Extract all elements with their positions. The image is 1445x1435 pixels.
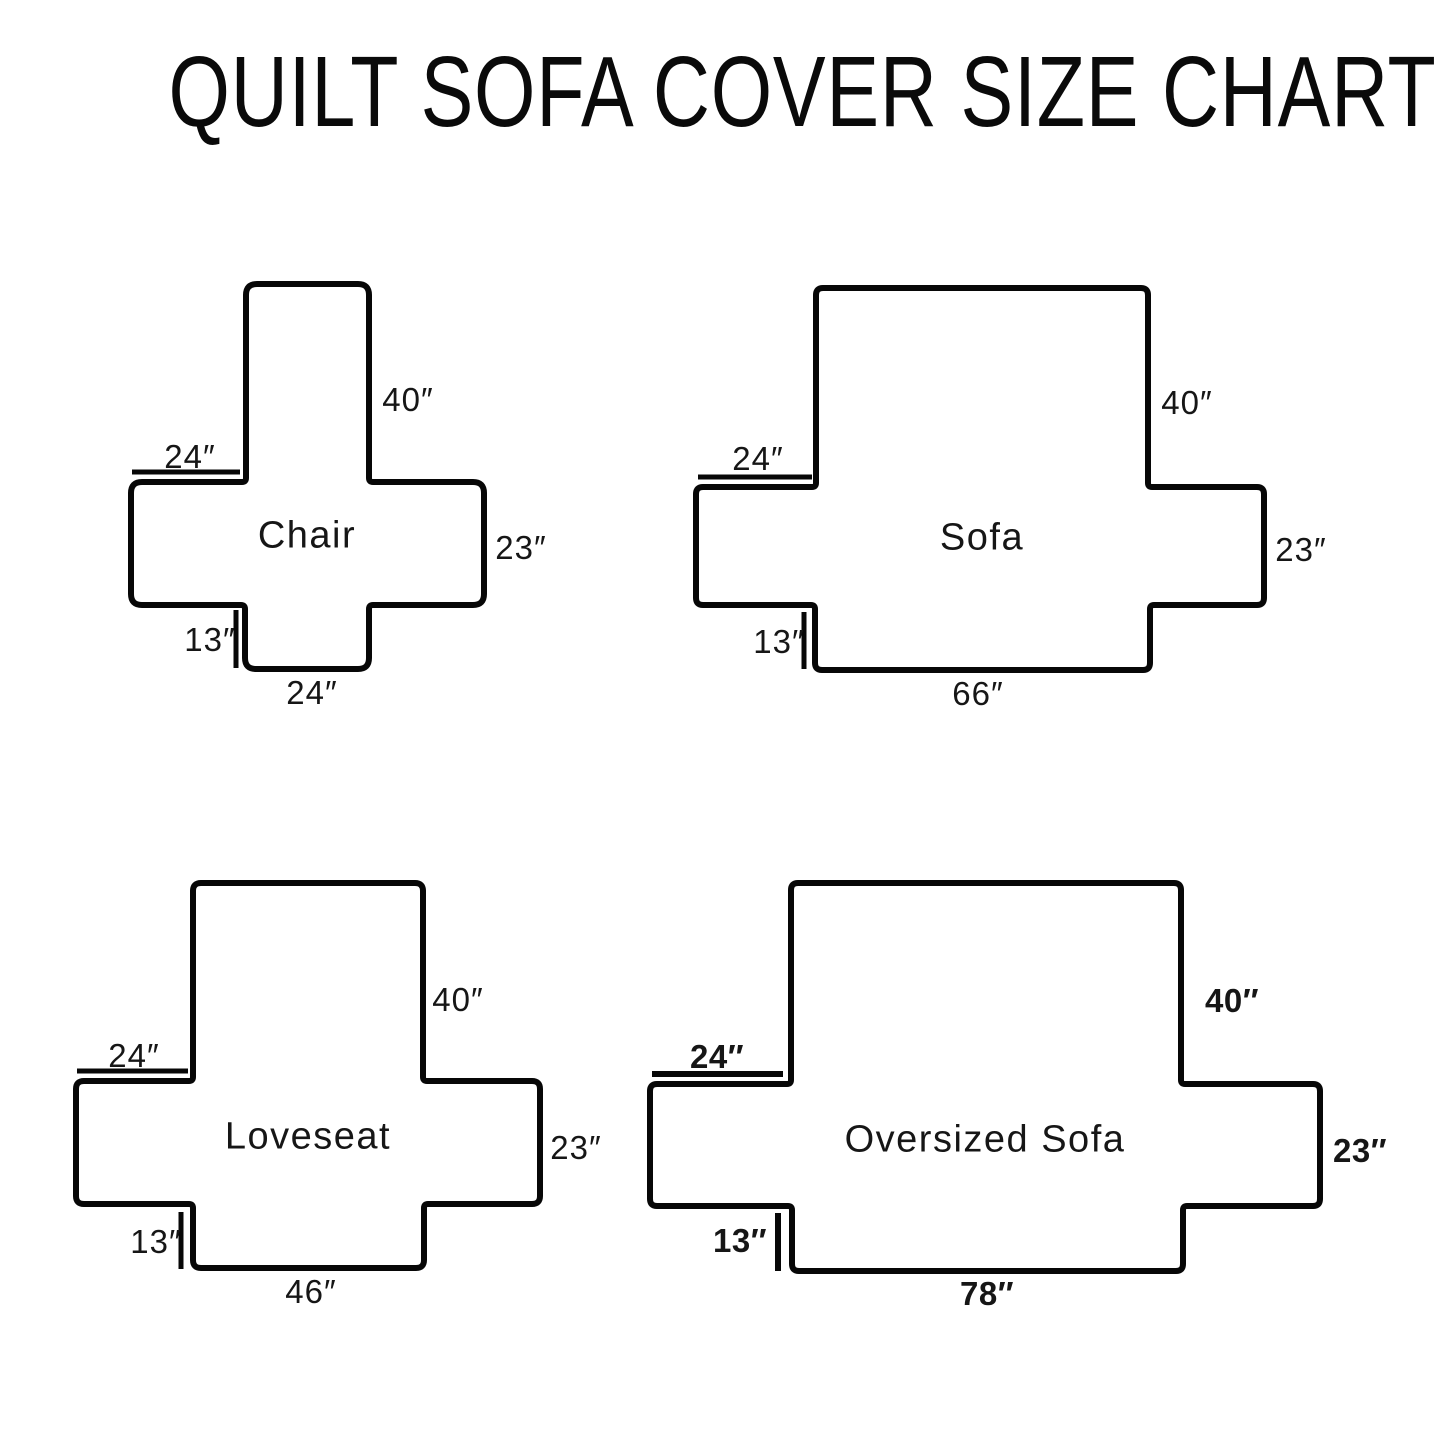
oversized-seat-width-label: 78″ xyxy=(960,1275,1014,1313)
size-chart-page: QUILT SOFA COVER SIZE CHART Chair 40″ 24… xyxy=(0,0,1445,1435)
loveseat-cover-outline xyxy=(76,883,540,1268)
oversized-back-height-label: 40″ xyxy=(1205,982,1259,1020)
loveseat-seat-width-label: 46″ xyxy=(285,1273,336,1311)
loveseat-name-label: Loveseat xyxy=(225,1116,391,1159)
oversized-arm-width-label: 24″ xyxy=(690,1038,744,1076)
sofa-skirt-drop-label: 13″ xyxy=(753,623,804,661)
loveseat-skirt-drop-label: 13″ xyxy=(130,1223,181,1261)
chair-name-label: Chair xyxy=(258,515,356,558)
chair-side-height-label: 23″ xyxy=(495,529,546,567)
chair-arm-width-label: 24″ xyxy=(164,438,215,476)
sofa-seat-width-label: 66″ xyxy=(952,675,1003,713)
chair-seat-width-label: 24″ xyxy=(286,674,337,712)
sofa-back-height-label: 40″ xyxy=(1161,384,1212,422)
loveseat-side-height-label: 23″ xyxy=(550,1129,601,1167)
chair-cover-outline xyxy=(131,284,484,669)
chair-back-height-label: 40″ xyxy=(382,381,433,419)
size-diagrams-canvas xyxy=(0,0,1445,1435)
sofa-side-height-label: 23″ xyxy=(1275,531,1326,569)
oversized-side-height-label: 23″ xyxy=(1333,1132,1387,1170)
oversized-skirt-drop-label: 13″ xyxy=(713,1222,767,1260)
chair-skirt-drop-label: 13″ xyxy=(184,621,235,659)
sofa-name-label: Sofa xyxy=(940,517,1024,560)
sofa-arm-width-label: 24″ xyxy=(732,440,783,478)
loveseat-arm-width-label: 24″ xyxy=(108,1037,159,1075)
loveseat-back-height-label: 40″ xyxy=(432,981,483,1019)
oversized-name-label: Oversized Sofa xyxy=(845,1119,1126,1162)
